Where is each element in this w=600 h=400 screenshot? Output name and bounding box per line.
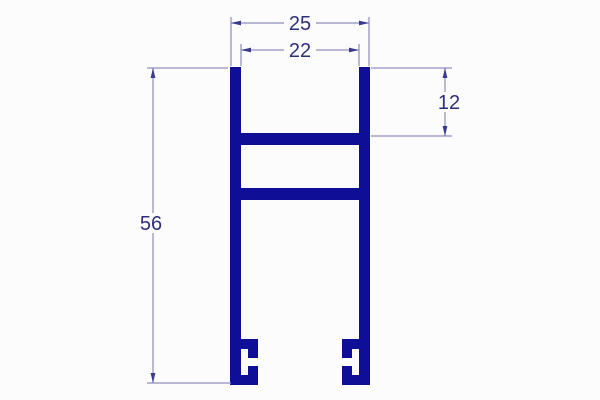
arrowhead-up: [151, 68, 156, 78]
arrowhead-right: [349, 48, 359, 53]
left-channel-bottom-arm: [230, 375, 258, 385]
arrowhead-right: [359, 21, 369, 26]
profile-cross-section-drawing: 25 22 12: [0, 0, 600, 400]
right-channel-bottom-arm: [342, 375, 370, 385]
dimension-label-22: 22: [289, 40, 311, 62]
profile-right-wall: [359, 67, 370, 385]
left-channel-top-lip: [248, 348, 258, 358]
dimension-label-12: 12: [438, 92, 460, 114]
dimension-top-channel-depth: 12: [371, 68, 465, 136]
arrowhead-down: [151, 373, 156, 383]
profile-upper-crossbar: [230, 133, 370, 145]
arrowhead-down: [443, 126, 448, 136]
dimension-label-56: 56: [140, 213, 162, 235]
dimension-overall-height: 56: [135, 68, 231, 383]
right-channel-top-lip: [342, 348, 352, 358]
arrowhead-up: [443, 68, 448, 78]
arrowhead-left: [241, 48, 251, 53]
profile-shape: [230, 67, 370, 385]
profile-left-wall: [230, 67, 241, 385]
profile-lower-crossbar: [230, 188, 370, 200]
right-channel-top-arm: [342, 339, 370, 349]
dimension-label-25: 25: [289, 13, 311, 35]
technical-drawing-canvas: 25 22 12: [0, 0, 600, 400]
arrowhead-left: [231, 21, 241, 26]
dimension-inner-width: 22: [241, 40, 359, 66]
left-channel-top-arm: [230, 339, 258, 349]
